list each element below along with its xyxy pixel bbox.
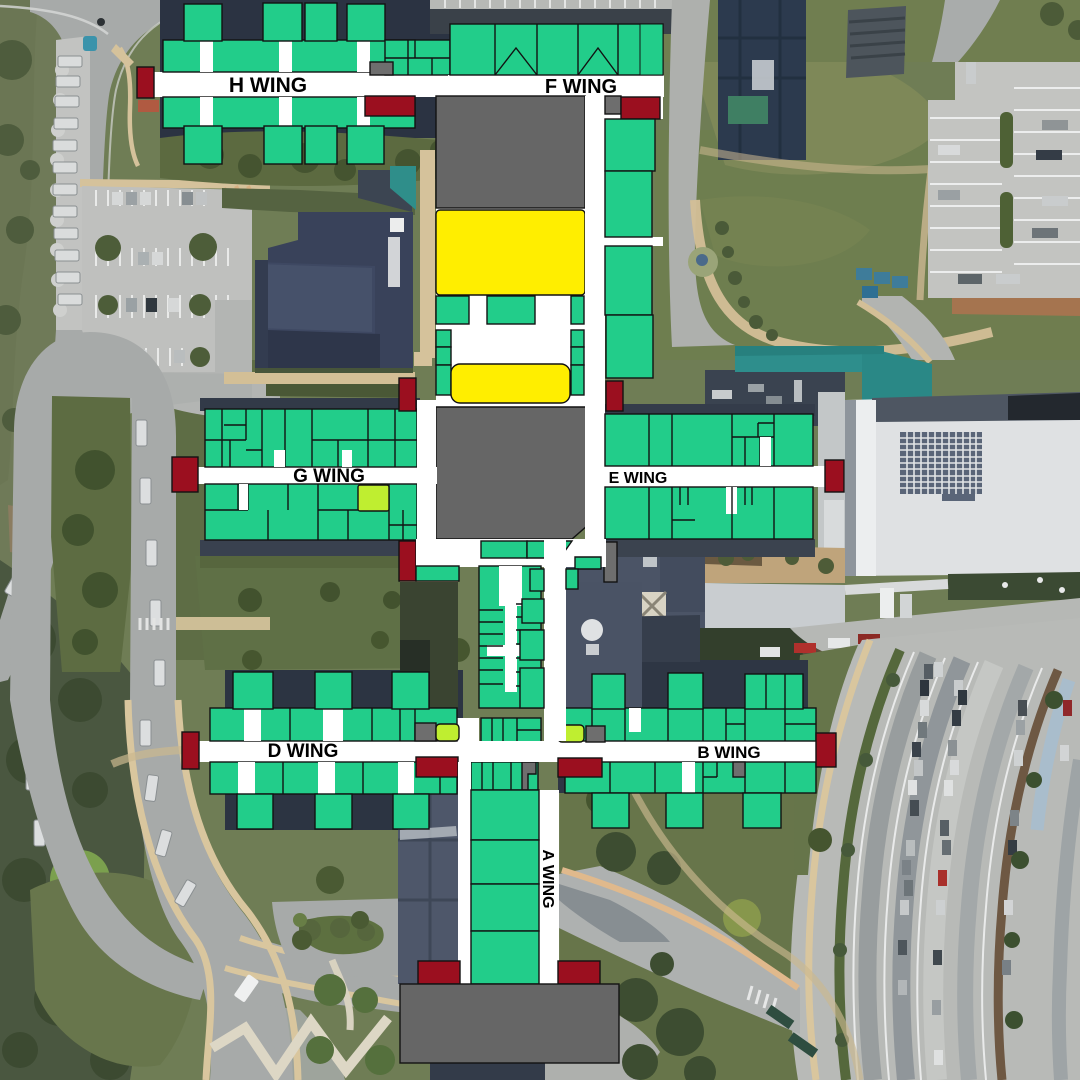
- svg-text:D WING: D WING: [268, 741, 339, 762]
- svg-text:B WING: B WING: [697, 743, 760, 762]
- svg-text:G WING: G WING: [293, 466, 365, 487]
- svg-text:A WING: A WING: [539, 850, 556, 909]
- svg-text:E WING: E WING: [609, 470, 668, 487]
- svg-text:F WING: F WING: [545, 76, 617, 98]
- svg-text:H WING: H WING: [229, 74, 307, 97]
